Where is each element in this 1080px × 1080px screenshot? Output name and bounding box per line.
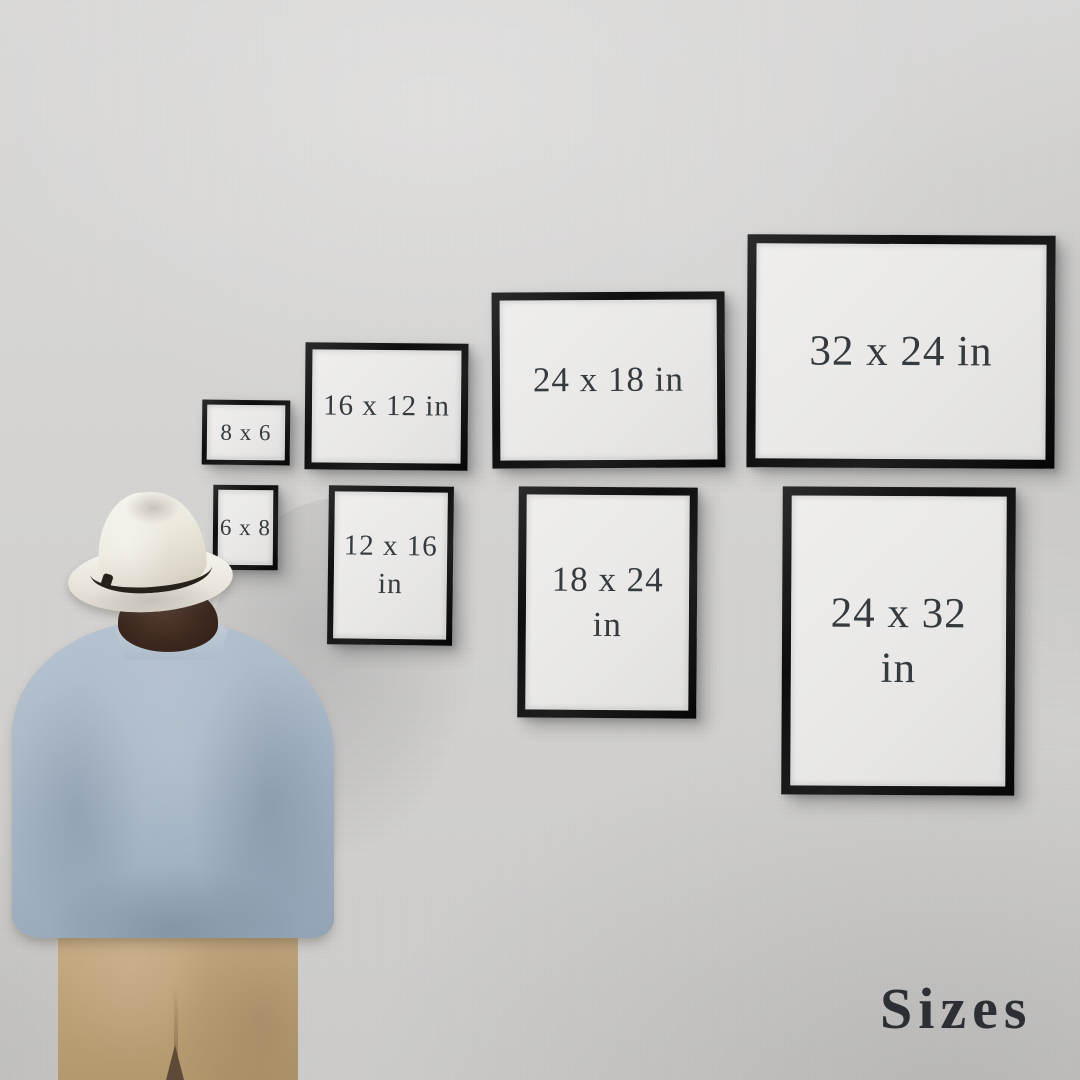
man-figure	[0, 490, 350, 1080]
size-text: in	[343, 565, 437, 603]
frame-paper: 8 x 6	[207, 405, 286, 461]
size-text: in	[551, 602, 663, 648]
size-label-8x6: 8 x 6	[220, 418, 271, 448]
size-label-24x32: 24 x 32 in	[830, 586, 967, 697]
size-label-12x16: 12 x 16 in	[343, 528, 438, 603]
size-text: 18 x 24	[552, 557, 664, 603]
size-text: 12 x 16	[344, 528, 438, 566]
size-text: in	[830, 641, 966, 697]
man-shirt	[12, 620, 334, 938]
frame-32x24: 32 x 24 in	[746, 234, 1055, 469]
size-label-24x18: 24 x 18 in	[533, 357, 684, 403]
sizes-caption: Sizes	[880, 980, 1032, 1038]
pants-leg-gap	[166, 1045, 184, 1080]
frame-24x32: 24 x 32 in	[781, 486, 1016, 795]
size-text: 24 x 18 in	[533, 357, 684, 403]
size-text: 8 x 6	[220, 418, 271, 448]
frame-paper: 12 x 16 in	[333, 491, 448, 639]
frame-paper: 24 x 18 in	[500, 299, 718, 460]
size-text: 24 x 32	[831, 586, 967, 642]
size-label-16x12: 16 x 12 in	[323, 387, 450, 425]
frame-18x24: 18 x 24 in	[517, 486, 698, 718]
size-text: 32 x 24 in	[809, 324, 992, 380]
frame-paper: 24 x 32 in	[790, 495, 1007, 786]
size-text: 16 x 12 in	[323, 387, 450, 425]
size-label-32x24: 32 x 24 in	[809, 324, 992, 380]
frame-24x18: 24 x 18 in	[492, 291, 726, 468]
frame-paper: 32 x 24 in	[755, 243, 1046, 460]
frame-16x12: 16 x 12 in	[304, 342, 468, 470]
frame-paper: 18 x 24 in	[525, 494, 689, 710]
mockup-scene: 8 x 6 16 x 12 in 24 x 18 in 32 x 24 in 6…	[0, 0, 1080, 1080]
frame-paper: 16 x 12 in	[312, 349, 462, 463]
frame-8x6: 8 x 6	[202, 400, 291, 466]
size-label-18x24: 18 x 24 in	[551, 557, 664, 647]
